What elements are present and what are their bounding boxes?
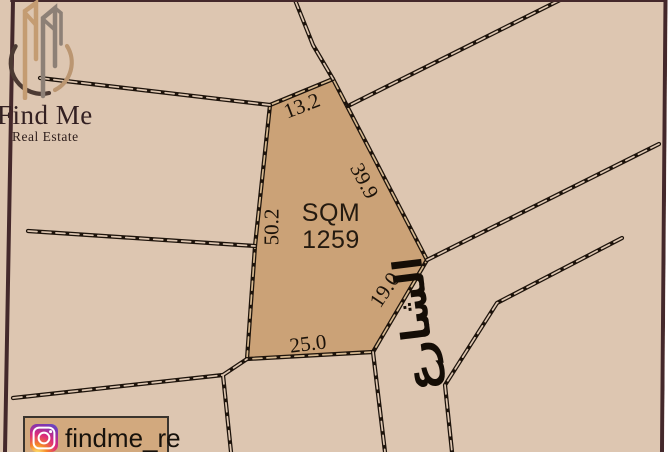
brand-name: Find Me: [0, 100, 93, 131]
road-line: [295, 0, 333, 79]
road-line: [445, 238, 622, 452]
road-centerline: [373, 352, 385, 452]
brand-logo: Find Me Real Estate: [0, 0, 110, 150]
brand-tagline: Real Estate: [12, 129, 79, 145]
area-unit: SQM: [302, 200, 360, 227]
road-centerline: [348, 0, 560, 106]
instagram-icon: [30, 424, 58, 452]
instagram-badge[interactable]: findme_re: [23, 416, 169, 452]
road-line: [13, 359, 247, 398]
plot-area-label: SQM 1259: [302, 200, 360, 254]
land-plot-map: 13.2 39.9 50.2 19.0 25.0 SQM 1259 الشارع: [0, 0, 668, 452]
area-value: 1259: [302, 227, 360, 254]
instagram-handle: findme_re: [65, 423, 181, 452]
buildings-in-circle-icon: [0, 0, 100, 100]
